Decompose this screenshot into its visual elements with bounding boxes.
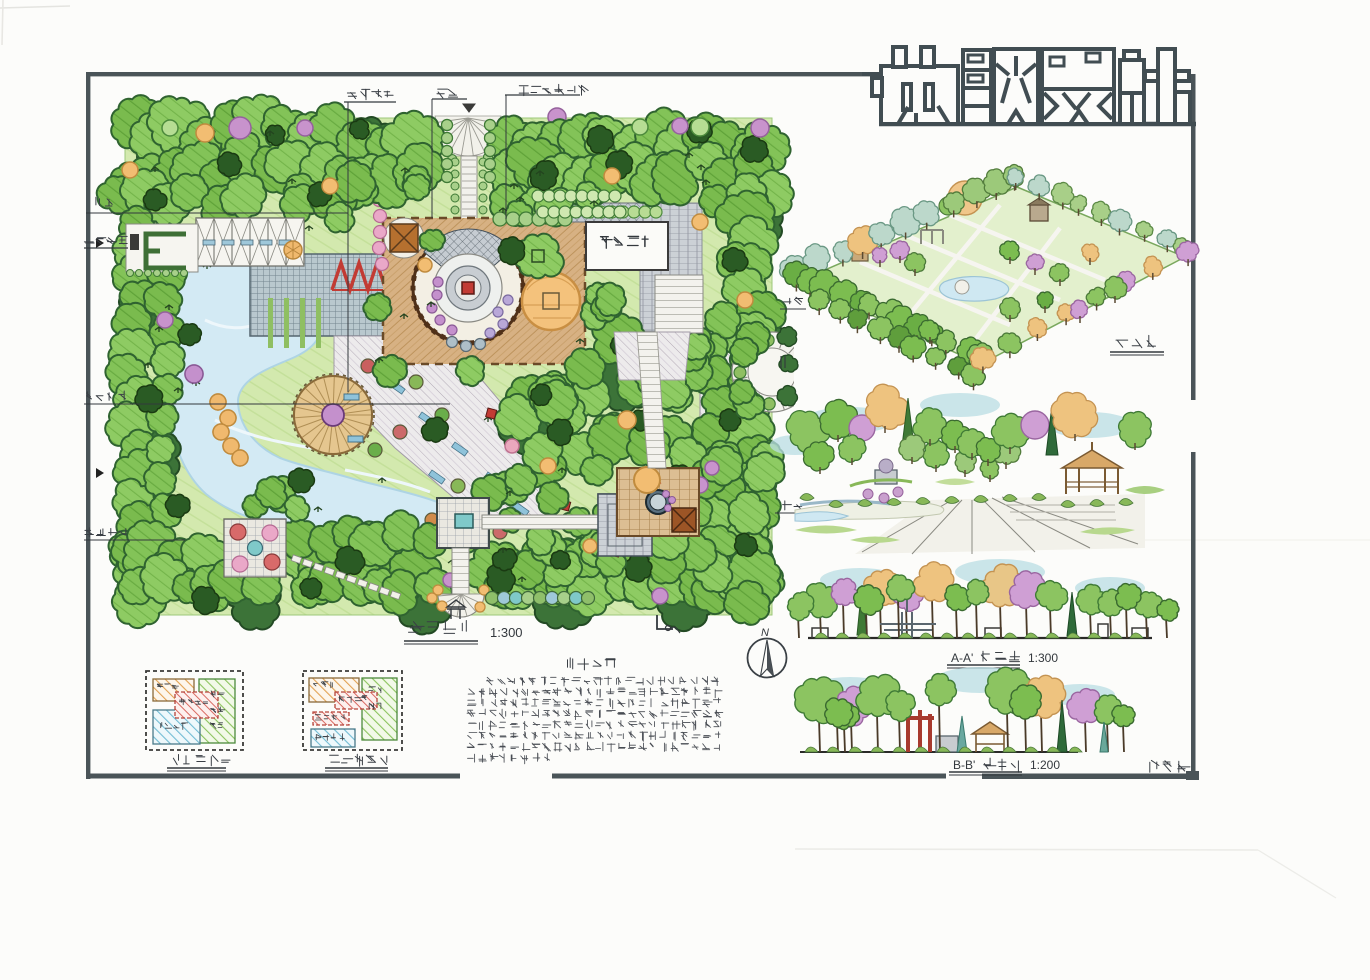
svg-text:1:300: 1:300 bbox=[490, 625, 523, 640]
svg-text:1:300: 1:300 bbox=[1028, 651, 1058, 665]
svg-text:N: N bbox=[761, 627, 769, 639]
svg-text:A-A': A-A' bbox=[951, 651, 973, 665]
svg-text:1:200: 1:200 bbox=[1030, 758, 1060, 772]
svg-text:B-B': B-B' bbox=[953, 758, 975, 772]
